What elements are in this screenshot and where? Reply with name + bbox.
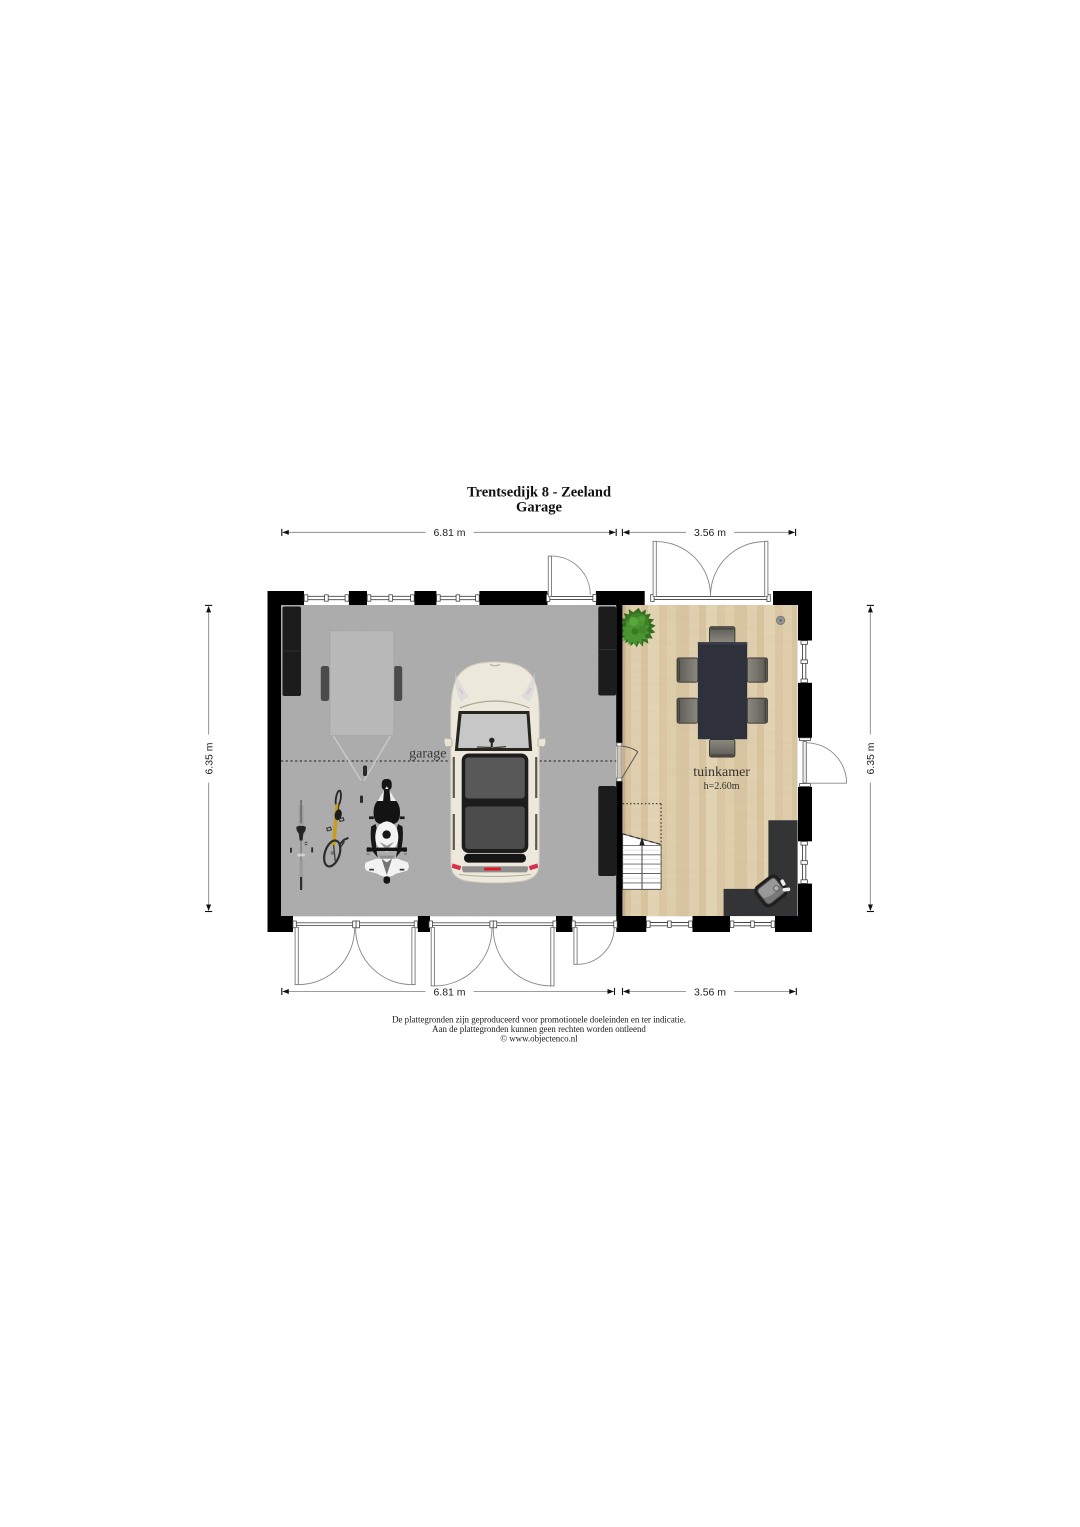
- svg-text:garage: garage: [409, 746, 446, 761]
- svg-text:3.56 m: 3.56 m: [694, 986, 726, 998]
- svg-text:Trentsedijk 8 - Zeeland: Trentsedijk 8 - Zeeland: [467, 485, 611, 501]
- svg-text:6.81 m: 6.81 m: [433, 986, 465, 998]
- svg-text:6.35 m: 6.35 m: [203, 742, 215, 774]
- svg-text:6.35 m: 6.35 m: [865, 742, 877, 774]
- svg-text:De plattegronden zijn geproduc: De plattegronden zijn geproduceerd voor …: [392, 1014, 686, 1024]
- svg-text:tuinkamer: tuinkamer: [693, 765, 750, 780]
- svg-text:Garage: Garage: [516, 500, 562, 516]
- svg-text:h=2.60m: h=2.60m: [704, 781, 740, 792]
- svg-text:3.56 m: 3.56 m: [694, 527, 726, 539]
- svg-text:6.81 m: 6.81 m: [433, 527, 465, 539]
- svg-text:© www.objectenco.nl: © www.objectenco.nl: [500, 1033, 578, 1043]
